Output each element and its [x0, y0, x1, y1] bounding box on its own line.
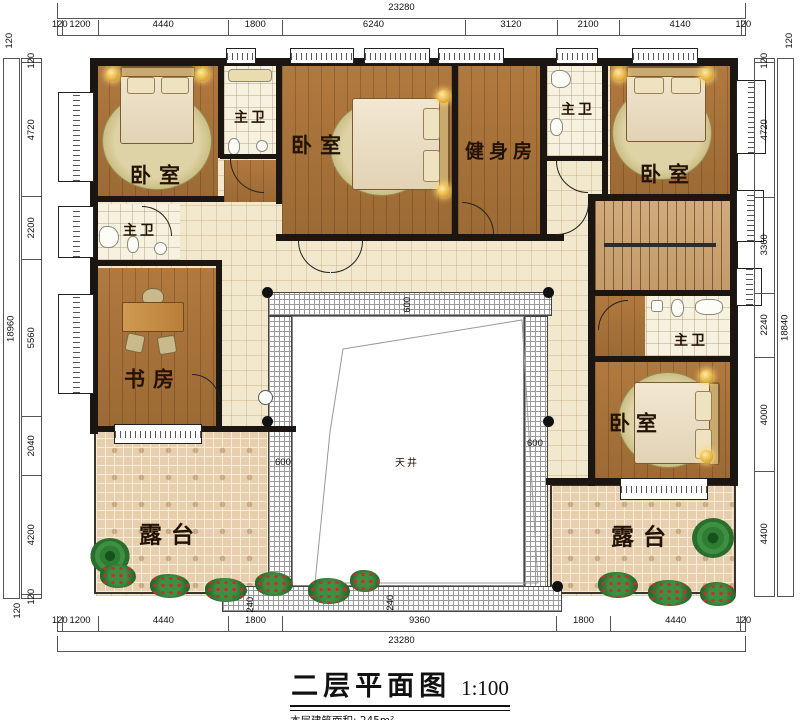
room-label-bedroom-tl: 卧室 — [130, 166, 188, 187]
post-dot — [543, 287, 554, 298]
dim-cell: 5560 — [22, 259, 41, 416]
drain-circle — [258, 390, 273, 405]
floor-plan-canvas: 卧室 主卫 主卫 卧室 健身房 主卫 卧室 书房 主卫 卧室 露台 露台 天井 … — [0, 0, 800, 720]
dim-left-total-col: 18960 — [3, 58, 20, 599]
bathtub — [99, 226, 119, 248]
dim-right-segments-col: 120 4720 3360 2240 4000 4400 — [754, 58, 775, 597]
plan-title: 二层平面图 — [291, 671, 451, 702]
dim-cell: 120 — [740, 616, 745, 631]
dim-bottom-total-row: 23280 — [57, 636, 746, 652]
dim-top-total-row: 23280 — [57, 3, 746, 19]
bed-center — [352, 98, 450, 190]
flower-cluster — [150, 574, 190, 598]
dim-left-total: 18960 — [7, 315, 17, 341]
lamp — [700, 370, 713, 383]
flower-cluster — [100, 564, 136, 588]
room-label-bedroom-br: 卧室 — [609, 414, 663, 435]
dim-cell: 4720 — [22, 62, 41, 196]
title-underline — [290, 705, 510, 711]
area-note: 本层建筑面积: 245m² — [290, 713, 510, 720]
dim-cell: 1800 — [228, 616, 282, 631]
dim-cell: 3360 — [755, 197, 774, 293]
window — [226, 48, 256, 64]
room-label-bedroom-tr: 卧室 — [640, 165, 696, 186]
window — [364, 48, 430, 64]
dim-cell: 2240 — [755, 293, 774, 357]
dim-court-right: 600 — [527, 439, 543, 449]
dim-top-segments-row: 120 1200 4440 1800 6240 3120 2100 4140 1… — [57, 20, 746, 36]
wall — [588, 194, 595, 486]
toilet — [228, 138, 240, 155]
sink — [651, 300, 663, 312]
window — [556, 48, 598, 64]
dim-cell: 1800 — [228, 20, 282, 35]
dim-cell: 4200 — [22, 475, 41, 594]
dim-corner-bl: 120 — [13, 603, 23, 619]
lamp — [613, 68, 626, 81]
dim-cell: 4400 — [755, 471, 774, 596]
room-label-terrace-l: 露台 — [139, 525, 203, 548]
dim-top-total: 23280 — [388, 3, 414, 13]
dim-cell: 2040 — [22, 416, 41, 474]
dim-cell: 4140 — [619, 20, 741, 35]
bay-window — [58, 206, 94, 258]
bathtub — [695, 299, 723, 315]
bed-top-left — [120, 66, 194, 144]
dim-right-total: 18840 — [781, 314, 791, 340]
stair-handrail — [604, 243, 716, 247]
wall — [90, 196, 224, 202]
bathtub — [228, 69, 272, 82]
sink — [154, 242, 167, 255]
room-label-bath-l: 主卫 — [123, 224, 157, 238]
dim-cell: 3120 — [465, 20, 557, 35]
wall — [595, 356, 738, 362]
wall — [595, 290, 738, 296]
dim-cell: 2100 — [557, 20, 619, 35]
dim-bottom-total: 23280 — [388, 636, 414, 646]
flower-cluster — [700, 582, 736, 606]
dim-corner-tr: 120 — [785, 33, 795, 49]
plant — [692, 518, 734, 558]
bay-window — [58, 92, 94, 182]
bay-window — [58, 294, 94, 394]
plan-scale: 1:100 — [461, 676, 509, 700]
flower-cluster — [598, 572, 638, 598]
dim-right-total-col: 18840 — [777, 58, 794, 597]
toilet — [550, 118, 563, 136]
dim-corner-tl: 120 — [5, 33, 15, 49]
dim-cell: 4440 — [98, 20, 229, 35]
dim-cell: 4000 — [755, 357, 774, 471]
lamp — [106, 68, 119, 81]
flower-cluster — [308, 578, 350, 604]
post-dot — [262, 287, 273, 298]
dim-walk-a: 240 — [386, 595, 396, 611]
bathtub — [551, 70, 571, 88]
dim-cell: 2200 — [22, 196, 41, 259]
chair — [124, 332, 145, 353]
bed-top-right — [626, 66, 706, 142]
room-label-bath-tl: 主卫 — [234, 111, 268, 125]
chair — [157, 335, 178, 356]
wall — [595, 194, 738, 201]
title-block: 二层平面图1:100 本层建筑面积: 245m² — [0, 664, 800, 720]
dim-cell: 4440 — [610, 616, 741, 631]
room-label-courtyard: 天井 — [395, 459, 419, 469]
room-label-bath-tr: 主卫 — [561, 103, 595, 117]
room-label-gym: 健身房 — [465, 143, 537, 162]
dim-bottom-segments-row: 120 1200 4440 1800 9360 1800 4440 120 — [57, 616, 746, 632]
dim-left-segments-col: 120 4720 2200 5560 2040 4200 120 — [21, 58, 42, 599]
window — [438, 48, 504, 64]
wall — [276, 58, 282, 204]
dim-cell: 1200 — [62, 616, 98, 631]
dim-cell: 1800 — [556, 616, 610, 631]
window — [290, 48, 354, 64]
wall — [452, 66, 458, 234]
lamp — [700, 68, 713, 81]
dim-cell: 4720 — [755, 62, 774, 196]
window — [632, 48, 698, 64]
wall — [602, 58, 608, 200]
lamp — [700, 450, 713, 463]
room-label-bath-r: 主卫 — [674, 334, 708, 348]
wall — [540, 58, 547, 238]
room-label-bedroom-c: 卧室 — [291, 136, 349, 157]
post-dot — [552, 581, 563, 592]
toilet — [671, 299, 684, 317]
room-label-study: 书房 — [124, 370, 182, 391]
wall — [90, 260, 222, 266]
room-label-terrace-r: 露台 — [611, 527, 675, 550]
lamp — [196, 68, 209, 81]
dim-cell: 120 — [22, 594, 41, 598]
wall — [218, 58, 224, 158]
dim-walk-b: 240 — [246, 597, 256, 613]
terrace-railing-window — [620, 478, 708, 500]
dim-cell: 1200 — [62, 20, 98, 35]
flower-cluster — [205, 578, 247, 602]
lamp — [437, 184, 450, 197]
dim-cell: 6240 — [282, 20, 465, 35]
flower-cluster — [255, 572, 293, 596]
dim-cell: 120 — [741, 20, 746, 35]
desk — [122, 302, 184, 332]
flower-cluster — [350, 570, 380, 592]
flower-cluster — [648, 580, 692, 606]
dim-court-left: 600 — [275, 458, 291, 468]
sink — [256, 140, 268, 152]
post-dot — [543, 416, 554, 427]
lamp — [437, 90, 450, 103]
dim-cell: 4440 — [98, 616, 229, 631]
dim-court-top: 600 — [403, 297, 413, 313]
wall — [216, 264, 222, 432]
terrace-railing-window — [114, 424, 202, 444]
wall — [276, 234, 564, 241]
dim-cell: 9360 — [282, 616, 556, 631]
